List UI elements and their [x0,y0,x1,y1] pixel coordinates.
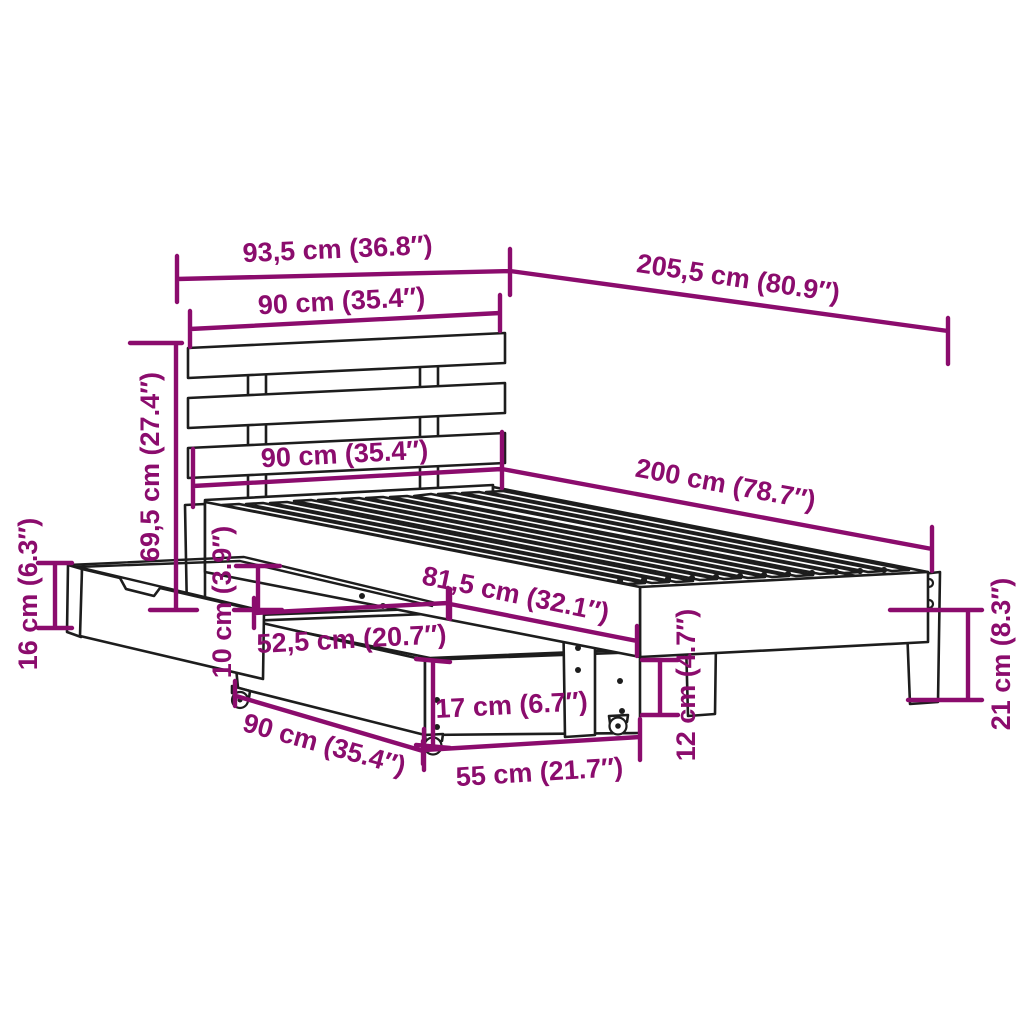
dim-label-drawer-end-height: 16 cm (6.3″) [13,518,43,671]
dim-label-bed-length: 200 cm (78.7″) [633,453,818,516]
dim-label-overall-length: 205,5 cm (80.9″) [635,248,842,308]
bed-frame-dimension-diagram: 93,5 cm (36.8″) 205,5 cm (80.9″) 90 cm (… [0,0,1024,1024]
dim-label-drawer-length: 55 cm (21.7″) [455,752,624,792]
dim-label-headboard-height: 69,5 cm (27.4″) [135,372,165,562]
dim-label-drawer-wall-height: 12 cm (4.7″) [671,609,701,762]
dim-label-headboard-width: 90 cm (35.4″) [257,282,426,321]
dim-label-leg-height: 21 cm (8.3″) [986,578,1016,731]
dim-label-under-bed-clearance: 10 cm (3.9″) [207,526,237,679]
dim-label-overall-width: 93,5 cm (36.8″) [242,230,433,268]
diagram-canvas: 93,5 cm (36.8″) 205,5 cm (80.9″) 90 cm (… [0,0,1024,1024]
